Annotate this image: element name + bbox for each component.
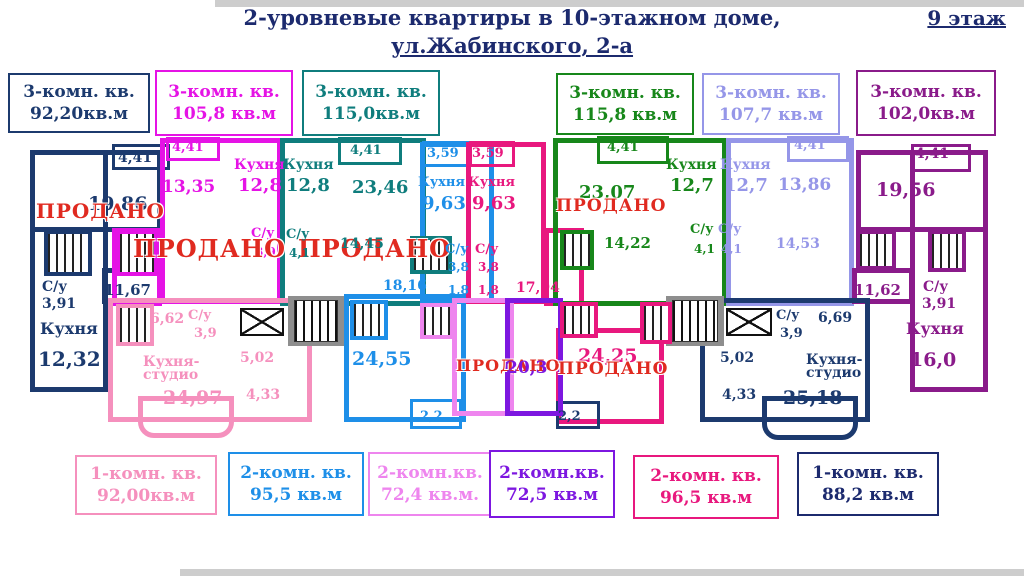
label-type: 2-комн. кв. (635, 465, 777, 487)
room-label: 3,59 (472, 146, 504, 161)
label-area: 105,8 кв.м (157, 103, 291, 125)
room-label: С/у (475, 242, 498, 257)
label-2room-96-5: 2-комн. кв. 96,5 кв.м (633, 455, 779, 519)
label-type: 3-комн. кв. (10, 81, 148, 103)
room-label: Кухня (418, 175, 465, 190)
room-label: 4,1 (694, 242, 715, 256)
room-label: 20,3 (506, 358, 547, 378)
room-label: 4,33 (246, 387, 280, 403)
label-type: 3-комн. кв. (304, 81, 438, 103)
room-label: С/у (690, 222, 713, 237)
room-label: 3,59 (427, 146, 459, 161)
sold-label: ПРОДАНО (36, 199, 165, 223)
floor-plan-page: 2-уровневые квартиры в 10-этажном доме, … (0, 0, 1024, 576)
room-label: 2,2 (558, 409, 581, 424)
stairs-icon (928, 230, 966, 272)
room-label: С/у (42, 279, 67, 295)
label-2room-72-5: 2-комн.кв. 72,5 кв.м (489, 450, 615, 518)
label-3room-102-0: 3-комн. кв. 102,0кв.м (856, 70, 996, 136)
label-3room-115-8: 3-комн. кв. 115,8 кв.м (556, 73, 694, 135)
room-label: Кухня (468, 175, 515, 190)
room-label: 17,94 (516, 280, 560, 296)
room-label: 1,8 (448, 283, 469, 297)
stairs-icon (350, 300, 388, 340)
label-3room-115-0: 3-комн. кв. 115,0кв.м (302, 70, 440, 136)
label-3room-107-7: 3-комн. кв. 107,7 кв.м (702, 73, 840, 135)
room-label: С/у (445, 242, 468, 257)
label-1room-92-00: 1-комн. кв. 92,00кв.м (75, 455, 217, 515)
room-label: студио (143, 367, 198, 383)
label-2room-95-5: 2-комн. кв. 95,5 кв.м (228, 452, 364, 516)
stairs-icon (44, 230, 92, 276)
room-label: 14,53 (776, 236, 820, 252)
label-area: 72,5 кв.м (491, 484, 613, 506)
label-area: 96,5 кв.м (635, 487, 777, 509)
label-2room-72-4: 2-комн.кв. 72,4 кв.м. (368, 452, 492, 516)
label-area: 102,0кв.м (858, 103, 994, 125)
room-label: 5,02 (720, 350, 754, 366)
room-label: 4,41 (915, 146, 949, 162)
room-label: С/у (286, 227, 309, 242)
room-label: С/у (923, 279, 948, 295)
room-label: Кухня (906, 319, 964, 338)
label-area: 92,20кв.м (10, 103, 148, 125)
label-type: 3-комн. кв. (858, 81, 994, 103)
label-type: 1-комн. кв. (77, 463, 215, 485)
room-label: 24,55 (352, 348, 412, 370)
room-label: 2,2 (420, 409, 443, 424)
elevator-icon (240, 308, 284, 336)
stairs-icon (560, 230, 594, 270)
room-label: Кухня (234, 157, 285, 173)
room-label: 3,91 (42, 296, 76, 312)
label-area: 92,00кв.м (77, 485, 215, 507)
room-label: 4,1 (289, 246, 310, 260)
bottom-edge-strip (180, 569, 1024, 576)
room-label: 6,69 (818, 310, 852, 326)
label-type: 3-комн. кв. (704, 82, 838, 104)
label-area: 115,0кв.м (304, 103, 438, 125)
room-label: Кухня (283, 157, 334, 173)
label-type: 3-комн. кв. (558, 82, 692, 104)
title-line1: 2-уровневые квартиры в 10-этажном доме, (0, 4, 1024, 32)
sold-label: ПРОДАНО (133, 234, 286, 263)
sold-label: ПРОДАНО (556, 196, 666, 216)
label-area: 72,4 кв.м. (370, 484, 490, 506)
room-label: 4,1 (721, 242, 742, 256)
room-label: 4,41 (350, 143, 382, 158)
room-label: 9,63 (422, 193, 466, 214)
stairs-icon (672, 300, 718, 342)
room-label: 9,63 (472, 193, 516, 214)
label-type: 2-комн.кв. (370, 462, 490, 484)
room-label: 4,33 (722, 387, 756, 403)
label-area: 95,5 кв.м (230, 484, 362, 506)
sold-label: ПРОДАНО (558, 359, 668, 379)
stairs-icon (856, 230, 896, 270)
room-label: 13,86 (778, 175, 831, 195)
title-line2: ул.Жабинского, 2-а (0, 32, 1024, 60)
room-label: 23,46 (352, 177, 408, 198)
label-3room-92-20: 3-комн. кв. 92,20кв.м (8, 73, 150, 133)
room-label: 3,9 (194, 326, 217, 341)
room-label: 11,67 (104, 281, 151, 299)
room-label: 14,22 (604, 234, 651, 252)
room-label: 25,18 (783, 387, 843, 409)
room-label: 18,16 (383, 278, 427, 294)
room-label: С/у (776, 308, 799, 323)
room-label: 11,62 (854, 281, 901, 299)
stairs-icon (420, 303, 454, 339)
label-area: 88,2 кв.м (799, 484, 937, 506)
room-label: 12,7 (724, 175, 768, 196)
room-label: 12,8 (286, 175, 330, 196)
stairs-icon (294, 300, 338, 342)
room-label: 4,41 (118, 150, 152, 166)
room-label: 12,7 (670, 175, 714, 196)
label-1room-88-2: 1-комн. кв. 88,2 кв.м (797, 452, 939, 516)
room-label: 12,8 (238, 175, 282, 196)
room-label: Кухня (40, 319, 98, 338)
room-label: 5,02 (240, 350, 274, 366)
room-label: 24,97 (163, 387, 223, 409)
stairs-icon (640, 302, 672, 344)
label-type: 1-комн. кв. (799, 462, 937, 484)
label-area: 115,8 кв.м (558, 104, 692, 126)
room-label: 4,41 (607, 140, 639, 155)
room-label: 13,35 (162, 177, 215, 197)
room-label: 1,8 (478, 283, 499, 297)
label-type: 3-комн. кв. (157, 81, 291, 103)
room-label: студио (806, 365, 861, 381)
room-label: С/у (188, 308, 211, 323)
room-label: 19,56 (876, 179, 936, 201)
floor-badge: 9 этаж (927, 6, 1006, 30)
room-label: 4,41 (172, 140, 204, 155)
elevator-icon (726, 308, 772, 336)
label-type: 2-комн.кв. (491, 462, 613, 484)
room-label: 3,91 (922, 296, 956, 312)
room-label: 12,32 (38, 347, 101, 371)
room-label: С/у (718, 222, 741, 237)
label-3room-105-8: 3-комн. кв. 105,8 кв.м (155, 70, 293, 136)
room-label: Кухня (666, 157, 717, 173)
page-title: 2-уровневые квартиры в 10-этажном доме, … (0, 4, 1024, 61)
room-label: 6,62 (150, 311, 184, 327)
room-label: 4,41 (794, 138, 826, 153)
room-label: 16,0 (910, 349, 956, 371)
room-label: 3,8 (478, 260, 499, 274)
label-type: 2-комн. кв. (230, 462, 362, 484)
room-label: 14,45 (340, 236, 384, 252)
stairs-icon (116, 304, 154, 346)
stairs-icon (560, 302, 598, 338)
room-label: Кухня (720, 157, 771, 173)
room-label: 3,8 (448, 260, 469, 274)
label-area: 107,7 кв.м (704, 104, 838, 126)
room-label: 3,9 (780, 326, 803, 341)
